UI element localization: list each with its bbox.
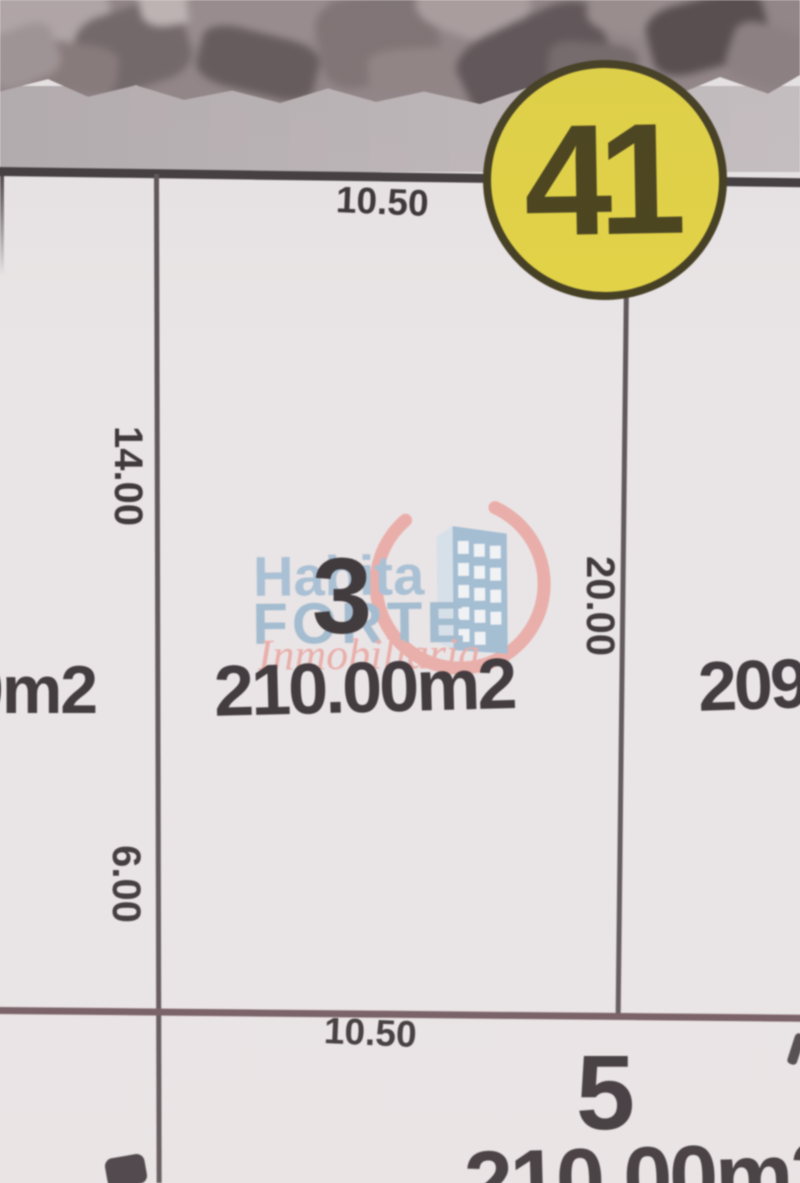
lot3-number-label: 3 [312,542,372,650]
left-lot-partial-area-label: 0m2 [0,656,96,724]
front-dimension-label: 10.50 [335,181,429,222]
lot3-area-label: 210.00m2 [213,648,515,728]
map-scene: Habita FORTE Inmobiliaria 41 10.50 14.00… [0,0,800,1183]
lot-map-photo: Habita FORTE Inmobiliaria 41 10.50 14.00… [0,0,800,1183]
left-edge-line-fragment [0,176,4,276]
lot3-left-upper-dimension-label: 14.00 [108,426,148,526]
lot5-partial-area-label: 210.00m2 [463,1129,800,1183]
partial-mark-right-edge [786,1032,800,1066]
lot3-right-dimension-label: 20.00 [580,556,620,656]
partial-dimension-mark-bottom-left [104,1153,149,1183]
lot3-left-boundary-line [154,174,162,1183]
right-lot-partial-area-label: 209 [697,648,800,722]
lot3-left-lower-dimension-label: 6.00 [106,845,146,923]
lot3-rear-dimension-label: 10.50 [323,1012,417,1053]
block-number: 41 [523,100,673,261]
